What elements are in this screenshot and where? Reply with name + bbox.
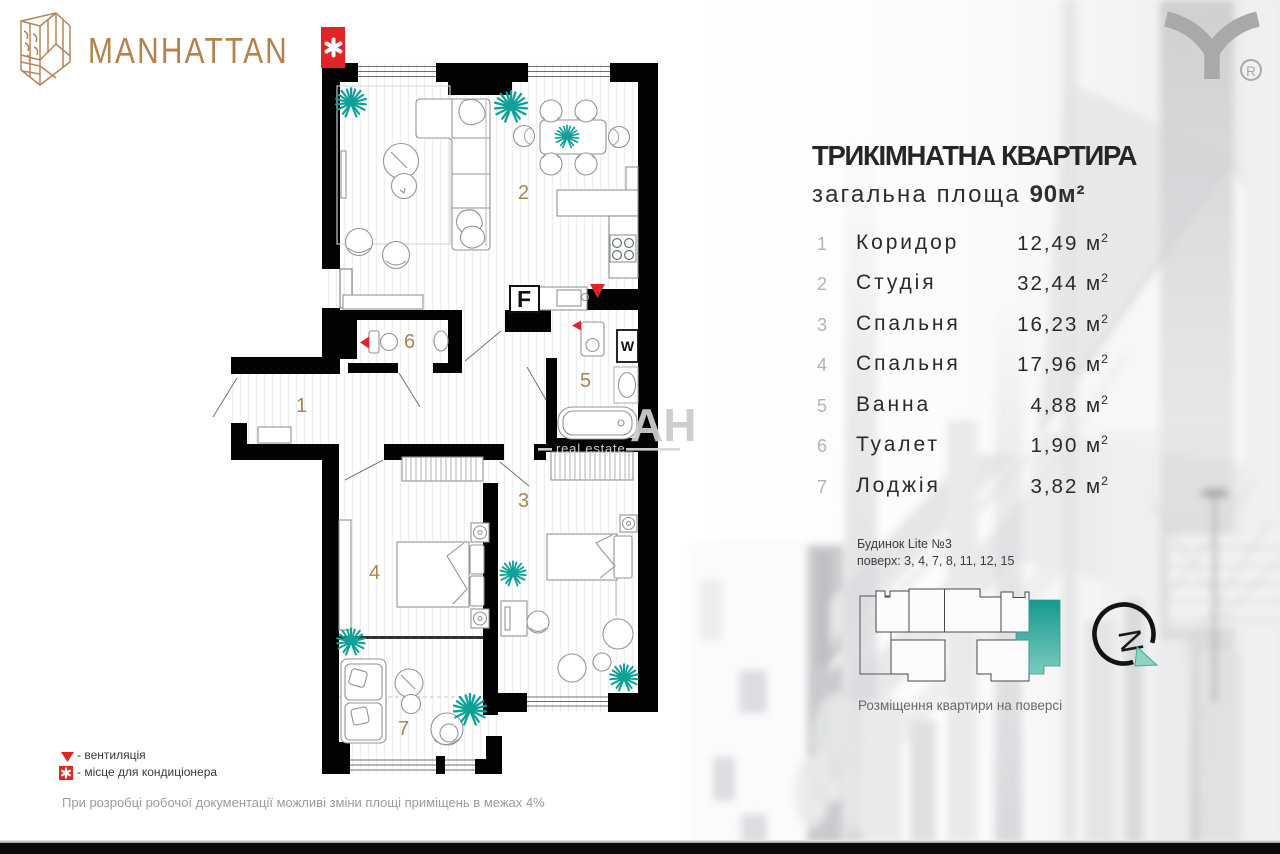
svg-text:7: 7 [398, 718, 409, 740]
svg-text:6: 6 [404, 331, 415, 353]
svg-text:АН: АН [630, 399, 696, 451]
svg-text:3: 3 [518, 490, 529, 512]
svg-text:N: N [1111, 626, 1150, 655]
svg-text:W: W [621, 338, 635, 354]
svg-text:1: 1 [296, 395, 307, 417]
svg-text:2: 2 [518, 182, 529, 204]
svg-text:F: F [517, 286, 531, 312]
svg-text:real estate: real estate [556, 441, 626, 456]
svg-text:4: 4 [369, 562, 380, 584]
svg-text:R: R [1246, 64, 1256, 79]
svg-text:5: 5 [580, 370, 591, 392]
